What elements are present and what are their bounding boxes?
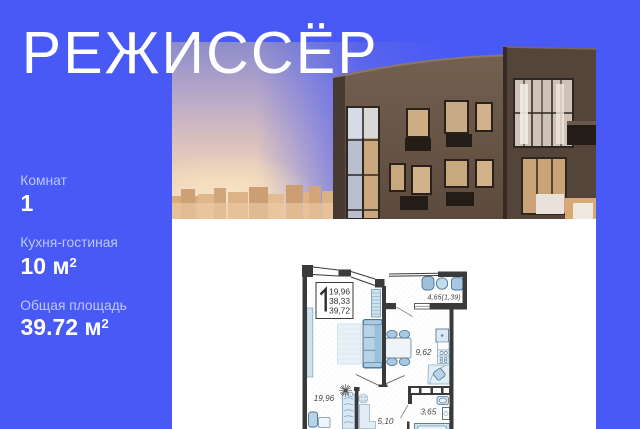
svg-text:19,96: 19,96 xyxy=(314,394,335,403)
svg-text:39,72: 39,72 xyxy=(329,305,350,315)
svg-text:5,10: 5,10 xyxy=(378,417,394,426)
svg-text:3,65: 3,65 xyxy=(420,408,436,417)
svg-text:9,62: 9,62 xyxy=(416,348,432,357)
svg-text:4,65(1,39): 4,65(1,39) xyxy=(427,292,460,301)
svg-text:19,96: 19,96 xyxy=(329,286,350,296)
svg-text:38,33: 38,33 xyxy=(329,296,350,306)
